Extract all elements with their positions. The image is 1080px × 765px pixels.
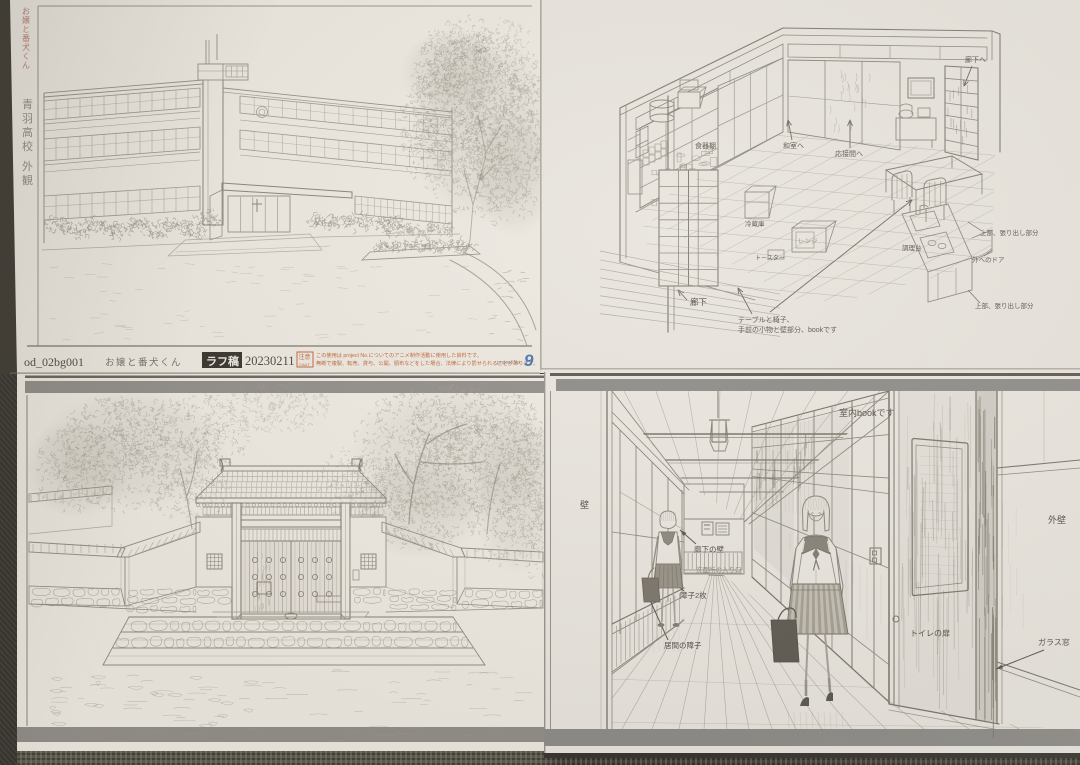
svg-text:上部、張り出し部分: 上部、張り出し部分 [975, 301, 1034, 310]
svg-text:トイレの扉: トイレの扉 [910, 628, 950, 638]
svg-text:od_02bg001: od_02bg001 [24, 355, 84, 369]
svg-text:テーブルと椅子、: テーブルと椅子、 [738, 315, 794, 324]
svg-text:洗面所の入り口: 洗面所の入り口 [696, 565, 742, 574]
svg-text:嬢: 嬢 [22, 15, 30, 25]
svg-text:校: 校 [22, 139, 33, 153]
svg-text:外: 外 [22, 160, 33, 173]
svg-text:レンジ: レンジ [798, 238, 818, 245]
svg-text:観: 観 [22, 173, 33, 187]
svg-text:上部、張り出し部分: 上部、張り出し部分 [980, 228, 1039, 237]
svg-text:お: お [22, 7, 30, 16]
svg-text:トースター: トースター [755, 254, 785, 262]
svg-text:注意: 注意 [299, 353, 311, 361]
svg-text:く: く [22, 52, 30, 61]
svg-text:障子2枚: 障子2枚 [680, 590, 707, 600]
svg-text:高: 高 [22, 125, 33, 139]
svg-text:20230211: 20230211 [245, 354, 295, 368]
svg-text:応接間へ: 応接間へ [835, 149, 863, 158]
svg-text:project No.: project No. [497, 360, 521, 366]
svg-text:青: 青 [22, 98, 33, 111]
svg-text:外へのドア: 外へのドア [972, 255, 1005, 264]
svg-text:和室へ: 和室へ [783, 141, 804, 150]
svg-text:室内bookです: 室内bookです [839, 407, 895, 418]
svg-text:調理台: 調理台 [902, 243, 922, 252]
svg-text:お嬢と番犬くん: お嬢と番犬くん [105, 357, 182, 369]
svg-text:番: 番 [22, 33, 30, 43]
svg-text:外壁: 外壁 [1048, 514, 1066, 525]
svg-text:廊下へ: 廊下へ [965, 55, 986, 64]
svg-text:廊下: 廊下 [690, 297, 708, 307]
svg-text:手前の小物と壁部分、bookです: 手前の小物と壁部分、bookです [738, 325, 837, 334]
svg-text:ラフ稿: ラフ稿 [206, 354, 239, 368]
svg-text:冷蔵庫: 冷蔵庫 [745, 219, 765, 228]
svg-text:犬: 犬 [22, 42, 30, 52]
svg-text:CAUT: CAUT [299, 362, 310, 367]
svg-text:廊下の壁: 廊下の壁 [694, 544, 724, 554]
svg-text:ん: ん [22, 61, 30, 70]
svg-text:羽: 羽 [22, 113, 33, 125]
svg-text:と: と [22, 25, 30, 34]
svg-text:9: 9 [524, 351, 534, 370]
svg-text:居間の障子: 居間の障子 [664, 640, 702, 650]
svg-text:食器棚: 食器棚 [695, 141, 716, 150]
svg-text:この使用は project No.についてのアニメ制作活動に: この使用は project No.についてのアニメ制作活動に使用した資料です。 [316, 351, 482, 359]
svg-text:ガラス窓: ガラス窓 [1038, 637, 1070, 647]
svg-text:壁: 壁 [580, 499, 589, 510]
